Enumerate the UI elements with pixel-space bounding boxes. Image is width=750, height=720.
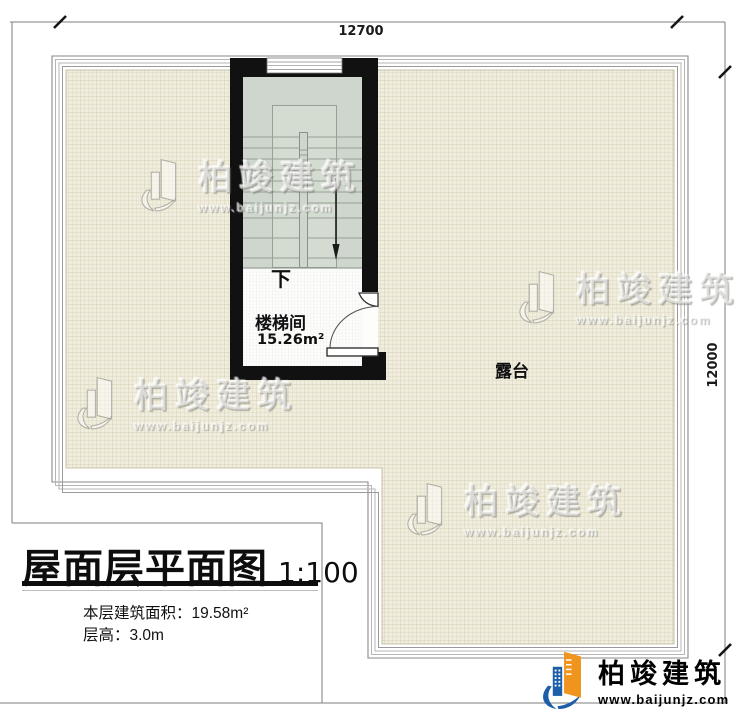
floor-area-note: 本层建筑面积：19.58m² (83, 601, 248, 623)
terrace-label: 露台 (495, 357, 529, 382)
title-underline-thin (22, 590, 318, 591)
floorplan-page: 柏竣建筑 www.baijunjz.com 柏竣建筑 www.baijunjz.… (0, 0, 750, 720)
stairwell-area: 15.26m² (257, 332, 324, 348)
stair-railing (300, 133, 308, 268)
logo-brand: 柏竣建筑 (598, 652, 729, 691)
stair-window (267, 58, 342, 73)
company-logo: 柏竣建筑 www.baijunjz.com (538, 648, 729, 710)
logo-url: www.baijunjz.com (598, 692, 729, 707)
dimension-top: 12700 (335, 24, 387, 39)
title-underline (22, 581, 318, 586)
stair-down-label: 下 (271, 263, 291, 292)
dimension-right: 12000 (688, 340, 738, 390)
logo-building-icon (538, 648, 592, 710)
floor-height-note: 层高：3.0m (83, 623, 164, 645)
stairwell-label: 楼梯间 (255, 309, 306, 334)
